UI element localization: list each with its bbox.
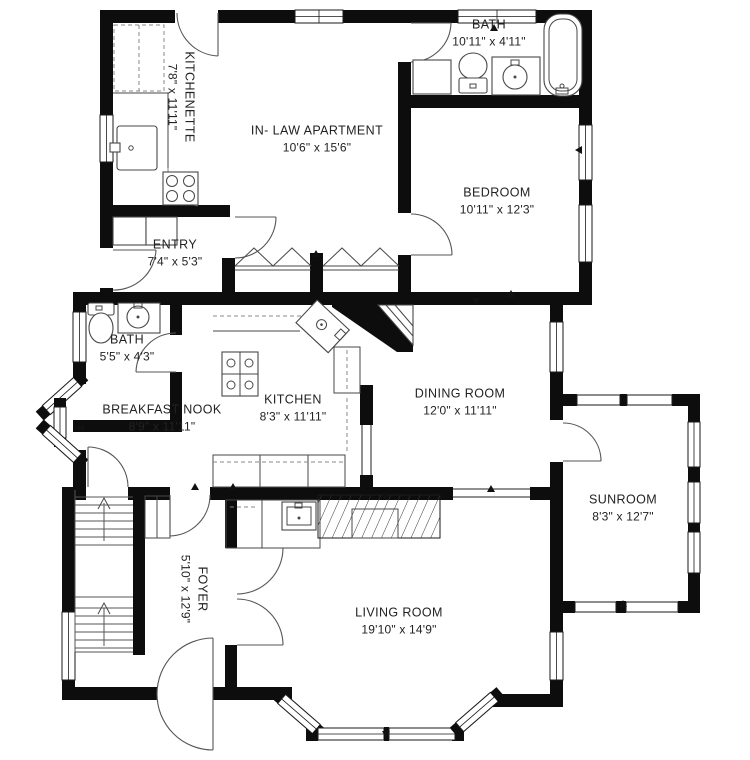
sink-icon [110, 126, 157, 170]
window [550, 632, 563, 680]
shower-icon [413, 60, 451, 94]
door [177, 13, 218, 56]
vanity-sink-icon [118, 303, 160, 333]
door [411, 214, 452, 255]
stove-icon [163, 172, 198, 205]
double-door [237, 548, 283, 645]
walls-layer [62, 10, 700, 741]
stairs-up-arrow [98, 498, 110, 541]
door [170, 495, 210, 536]
door [563, 423, 601, 461]
window [688, 482, 700, 523]
floor-plan-drawing [0, 0, 750, 760]
window [579, 205, 592, 262]
doors-layer [88, 13, 601, 750]
door [88, 447, 128, 487]
window [295, 10, 343, 23]
window [550, 322, 563, 372]
floor-plan: KITCHENETTE 7'8" x 11'11" IN- LAW APARTM… [0, 0, 750, 760]
window [100, 115, 113, 162]
door [411, 23, 451, 62]
foyer-closet [145, 496, 170, 538]
cased-opening [362, 425, 371, 475]
toilet-icon [88, 303, 114, 343]
toilet-icon [459, 53, 487, 93]
door [113, 250, 156, 290]
sink-icon [282, 502, 316, 530]
entry-cabinets [113, 217, 177, 245]
bay-window [450, 687, 505, 737]
window [688, 422, 700, 467]
fireplace-icon [318, 495, 440, 538]
window [688, 532, 700, 573]
fixtures-layer [88, 14, 582, 548]
door [235, 217, 276, 258]
front-door [157, 638, 213, 750]
window [73, 312, 86, 362]
window [458, 10, 536, 23]
bathtub-icon [544, 14, 582, 96]
window [62, 612, 75, 680]
vanity-sink-icon [492, 57, 540, 95]
markers-layer [77, 14, 627, 738]
door [136, 333, 176, 372]
stairs-icon [75, 490, 170, 652]
range-icon [222, 352, 258, 396]
